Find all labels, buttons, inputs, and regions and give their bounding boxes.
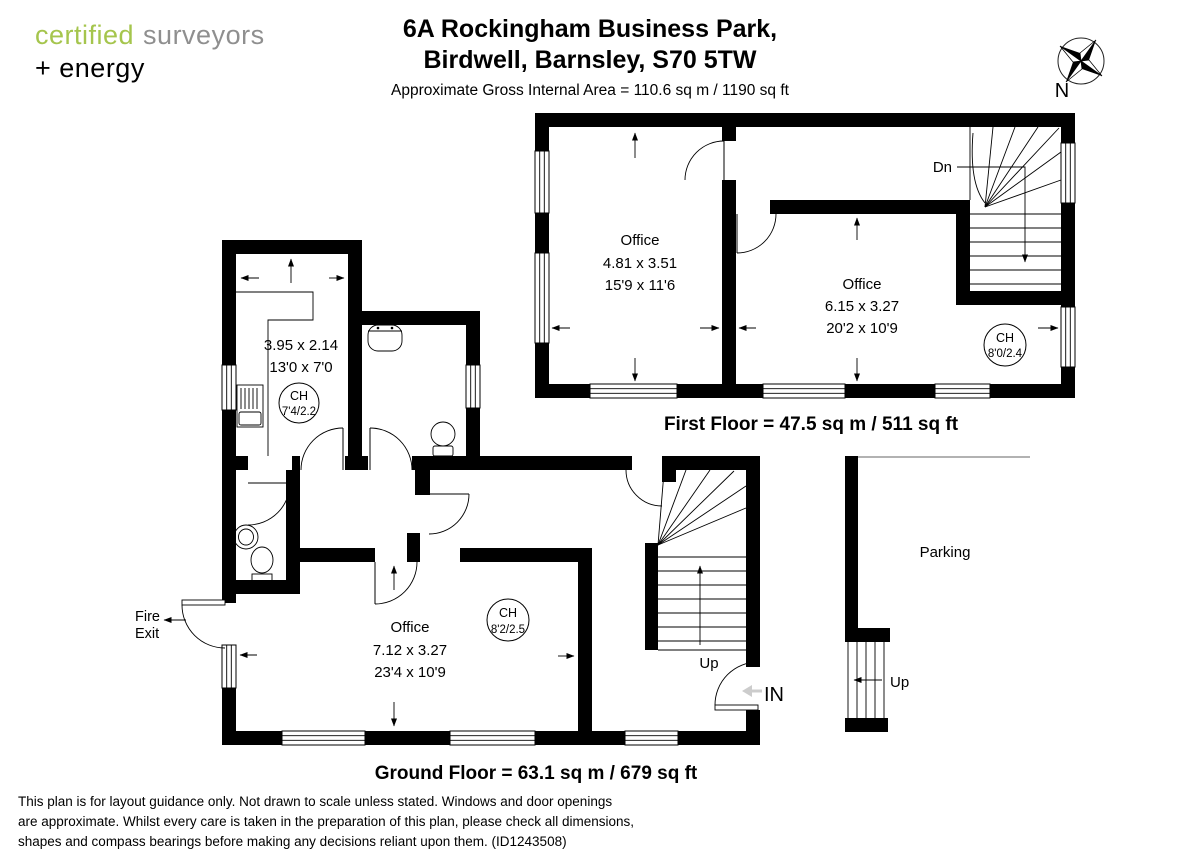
ch-label: CH xyxy=(499,606,517,620)
ch-value: 8'0/2.4 xyxy=(988,348,1023,360)
external-steps: Up xyxy=(848,642,909,718)
room-name: Office xyxy=(391,619,430,636)
fire-exit-door xyxy=(182,600,225,648)
compass-rose-icon: N xyxy=(1055,38,1104,102)
ground-floor-title: Ground Floor = 63.1 sq m / 679 sq ft xyxy=(375,763,698,784)
office-door xyxy=(375,562,417,604)
room-size-metric: 7.12 x 3.27 xyxy=(373,642,447,659)
door xyxy=(685,141,724,180)
window xyxy=(450,731,535,745)
washroom-fixtures xyxy=(368,325,455,456)
door xyxy=(737,214,776,253)
ground-floor-staircase: Up xyxy=(658,470,746,672)
fire-exit-line2: Exit xyxy=(135,626,159,642)
first-floor-office-left-label: Office 4.81 x 3.51 15'9 x 11'6 xyxy=(603,232,677,294)
window xyxy=(535,253,549,343)
logo-line1: certifiedsurveyors xyxy=(35,20,265,50)
ground-floor-office-label: Office 7.12 x 3.27 23'4 x 10'9 CH 8'2/2.… xyxy=(373,599,529,681)
kitchen-door xyxy=(301,428,343,470)
kitchen-label: 3.95 x 2.14 13'0 x 7'0 CH 7'4/2.2 xyxy=(264,337,338,423)
first-floor-title: First Floor = 47.5 sq m / 511 sq ft xyxy=(664,414,959,435)
logo-line2: + energy xyxy=(35,53,145,83)
window xyxy=(590,384,677,398)
logo-word-surveyors: surveyors xyxy=(143,20,265,50)
logo: certifiedsurveyors + energy xyxy=(35,20,265,83)
window xyxy=(282,731,365,745)
first-floor-office-right-label: Office 6.15 x 3.27 20'2 x 10'9 xyxy=(825,276,899,337)
ground-floor-walls xyxy=(222,240,890,745)
fire-exit-line1: Fire xyxy=(135,609,160,625)
disclaimer-line1: This plan is for layout guidance only. N… xyxy=(18,794,612,809)
room-name: Office xyxy=(843,276,882,293)
room-size-imperial: 15'9 x 11'6 xyxy=(605,277,676,294)
lobby-door xyxy=(429,494,469,534)
entrance-label: IN xyxy=(742,684,784,706)
window xyxy=(1061,307,1075,367)
window xyxy=(222,365,236,410)
parking-label: Parking xyxy=(920,544,971,561)
fire-exit-label: Fire Exit xyxy=(135,609,186,642)
window xyxy=(763,384,845,398)
disclaimer-line2: are approximate. Whilst every care is ta… xyxy=(18,814,634,829)
wc-door xyxy=(248,483,290,525)
ch-value: 8'2/2.5 xyxy=(491,624,525,636)
room-size-metric: 3.95 x 2.14 xyxy=(264,337,338,354)
wc-fixtures xyxy=(234,525,273,582)
room-size-imperial: 13'0 x 7'0 xyxy=(269,359,332,376)
external-steps-up-label: Up xyxy=(890,674,909,691)
parking-area: Parking xyxy=(858,457,1030,561)
window xyxy=(935,384,990,398)
entrance-arrow-icon xyxy=(742,685,752,697)
header-title: 6A Rockingham Business Park, Birdwell, B… xyxy=(391,15,790,99)
address-line2: Birdwell, Barnsley, S70 5TW xyxy=(424,46,757,74)
window xyxy=(1061,143,1075,203)
window xyxy=(625,731,678,745)
first-floor-ceiling-height-badge: CH 8'0/2.4 xyxy=(984,324,1026,366)
washroom-door xyxy=(370,428,412,470)
window xyxy=(222,645,236,688)
floorplan-canvas: certifiedsurveyors + energy 6A Rockingha… xyxy=(0,0,1200,859)
logo-word-certified: certified xyxy=(35,20,134,50)
room-size-metric: 6.15 x 3.27 xyxy=(825,298,899,315)
gross-area-line: Approximate Gross Internal Area = 110.6 … xyxy=(391,82,790,99)
stairs-down-label: Dn xyxy=(933,159,952,176)
room-size-imperial: 20'2 x 10'9 xyxy=(826,320,898,337)
ch-label: CH xyxy=(290,389,308,403)
entrance-in-label: IN xyxy=(764,684,784,706)
disclaimer: This plan is for layout guidance only. N… xyxy=(18,794,634,849)
stair-hall-door xyxy=(626,470,662,506)
disclaimer-line3: shapes and compass bearings before makin… xyxy=(18,834,567,849)
window xyxy=(535,151,549,213)
room-size-metric: 4.81 x 3.51 xyxy=(603,255,677,272)
ch-label: CH xyxy=(996,331,1014,345)
address-line1: 6A Rockingham Business Park, xyxy=(403,15,777,43)
stairs-up-label: Up xyxy=(699,655,718,672)
floorplan-page: certifiedsurveyors + energy 6A Rockingha… xyxy=(0,0,1200,859)
ch-value: 7'4/2.2 xyxy=(282,406,316,418)
first-floor-plan: Dn Office 4.81 x 3.51 15'9 x 11'6 Office… xyxy=(535,113,1075,435)
window xyxy=(466,365,480,408)
compass-north-label: N xyxy=(1055,80,1069,102)
room-size-imperial: 23'4 x 10'9 xyxy=(374,664,446,681)
room-name: Office xyxy=(621,232,660,249)
